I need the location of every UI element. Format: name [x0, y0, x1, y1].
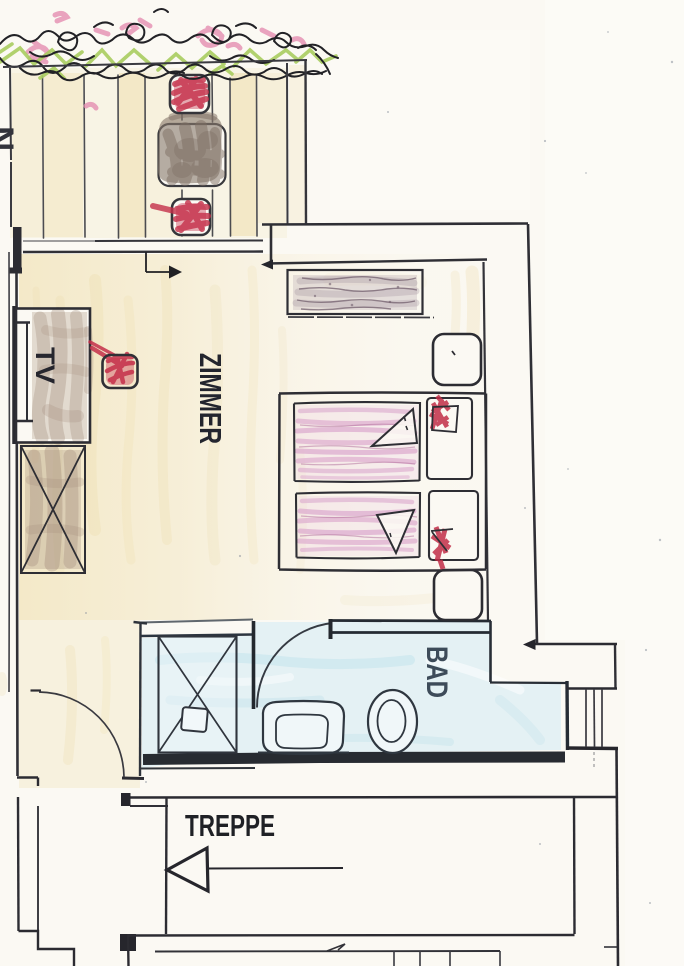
svg-text:N: N: [0, 126, 20, 151]
svg-text:TREPPE: TREPPE: [185, 808, 275, 843]
svg-text:ZIMMER: ZIMMER: [193, 353, 228, 444]
svg-text:BAD: BAD: [420, 646, 453, 698]
svg-text:TV: TV: [30, 347, 60, 384]
